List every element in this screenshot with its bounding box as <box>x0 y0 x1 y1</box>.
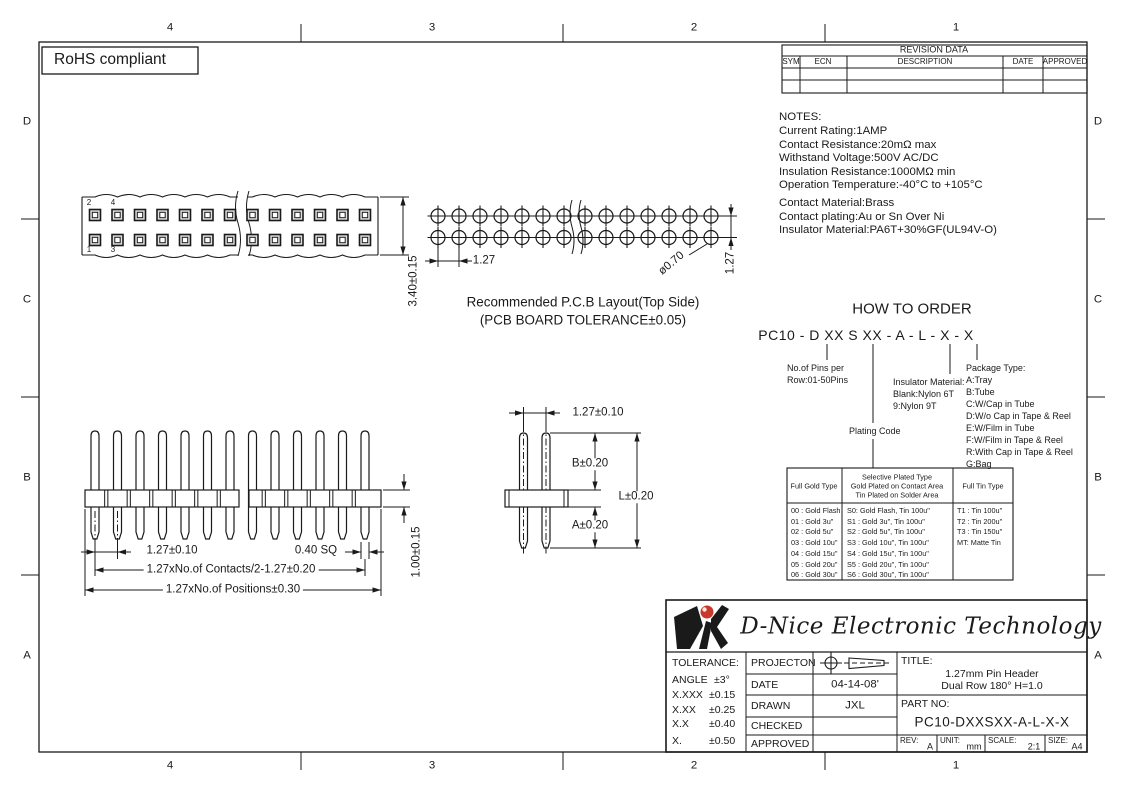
dim-front-pin-sq: 0.40 SQ <box>295 545 337 557</box>
package-option: F:W/Film in Tape & Reel <box>966 436 1063 445</box>
size-value: A4 <box>1071 743 1082 752</box>
pin-number: 2 <box>87 199 91 207</box>
revision-col-header: ECN <box>815 58 832 66</box>
notes-line: Operation Temperature:-40°C to +105°C <box>779 180 983 191</box>
field-value-date: 04-14-08' <box>831 679 879 690</box>
plating-gold-row: 06 : Gold 30u" <box>791 571 837 578</box>
plating-gold-row: 00 : Gold Flash <box>791 507 840 514</box>
drawing-sheet: 4 3 2 1 4 3 2 1 D C B A D C B A RoHS com… <box>0 0 1123 794</box>
tolerance-label: X.X <box>672 719 689 730</box>
field-value-drawn: JXL <box>845 700 865 711</box>
tolerance-value: ±0.15 <box>709 690 735 701</box>
revision-col-header: SYM <box>782 58 799 66</box>
zone-label-left: A <box>23 650 31 661</box>
callout-pins: No.of Pins per <box>787 364 844 373</box>
company-name: D-Nice Electronic Technology <box>740 616 1101 639</box>
field-label-drawn: DRAWN <box>751 701 790 712</box>
part-no-value: PC10-DXXSXX-A-L-X-X <box>914 715 1069 729</box>
package-option: G:Bag <box>966 460 992 469</box>
callout-pins: Row:01-50Pins <box>787 376 848 385</box>
callout-plating: Plating Code <box>849 427 901 436</box>
dim-top-view-height: 3.40±0.15 <box>408 255 420 306</box>
zone-label-left: B <box>23 472 31 483</box>
callout-insulator: Blank:Nylon 6T <box>893 390 954 399</box>
plating-header-tin: Full Tin Type <box>962 482 1003 489</box>
revision-col-header: DATE <box>1013 58 1034 66</box>
zone-label-top: 2 <box>691 22 697 33</box>
notes-line: Contact Resistance:20mΩ max <box>779 140 936 151</box>
revision-col-header: DESCRIPTION <box>898 58 953 66</box>
dim-front-positions: 1.27xNo.of Positions±0.30 <box>163 584 303 596</box>
zone-label-left: C <box>23 294 31 305</box>
package-option: E:W/Film in Tube <box>966 424 1035 433</box>
notes-line: Contact Material:Brass <box>779 198 894 209</box>
revision-table-title: REVISION DATA <box>900 46 968 55</box>
zone-label-top: 1 <box>953 22 959 33</box>
zone-label-right: C <box>1094 294 1102 305</box>
zone-label-bottom: 3 <box>429 760 435 771</box>
scale-value: 2:1 <box>1028 743 1041 752</box>
notes-line: Current Rating:1AMP <box>779 126 887 137</box>
dim-side-a: A±0.20 <box>569 520 611 532</box>
dim-side-b: B±0.20 <box>569 458 611 470</box>
plating-tin-row: T1 : Tin 100u" <box>957 507 1002 514</box>
pin-number: 4 <box>111 199 115 207</box>
plating-header-gold: Full Gold Type <box>791 482 838 489</box>
pin-number: 1 <box>87 246 91 254</box>
tolerance-label: X.XX <box>672 705 696 716</box>
rev-value: A <box>927 743 933 752</box>
plating-selective-row: S3 : Gold 10u", Tin 100u" <box>847 539 929 546</box>
plating-gold-row: 05 : Gold 20u" <box>791 561 837 568</box>
how-to-order-title: HOW TO ORDER <box>852 302 971 317</box>
dim-pcb-row: 1.27 <box>725 252 737 274</box>
field-label-date: DATE <box>751 680 778 691</box>
plating-selective-row: S5 : Gold 20u", Tin 100u" <box>847 561 929 568</box>
part-no-label: PART NO: <box>901 699 949 710</box>
field-label-projection: PROJECTON <box>751 658 816 669</box>
plating-selective-row: S4 : Gold 15u", Tin 100u" <box>847 550 929 557</box>
part-number-format: PC10 - D XX S XX - A - L - X - X <box>758 328 973 342</box>
tolerance-label: X.XXX <box>672 690 703 701</box>
package-option: C:W/Cap in Tube <box>966 400 1035 409</box>
field-label-approved: APPROVED <box>751 739 809 750</box>
size-label: SIZE: <box>1048 737 1068 745</box>
pin-number: 3 <box>111 246 115 254</box>
zone-label-left: D <box>23 116 31 127</box>
notes-line: Insulation Resistance:1000MΩ min <box>779 167 955 178</box>
tolerance-value: ±0.50 <box>709 736 735 747</box>
tolerance-label: X. <box>672 736 682 747</box>
unit-label: UNIT: <box>940 737 960 745</box>
unit-value: mm <box>967 743 982 752</box>
plating-selective-row: S0: Gold Flash, Tin 100u" <box>847 507 930 514</box>
drawing-title-line1: 1.27mm Pin Header <box>945 669 1038 680</box>
pcb-caption: Recommended P.C.B Layout(Top Side) <box>467 295 700 308</box>
package-option: D:W/o Cap in Tape & Reel <box>966 412 1071 421</box>
notes-line: Contact plating:Au or Sn Over Ni <box>779 212 944 223</box>
plating-tin-row: T3 : Tin 150u" <box>957 528 1002 535</box>
zone-label-bottom: 4 <box>167 760 173 771</box>
dim-side-l: L±0.20 <box>615 491 656 503</box>
plating-header-selective: Gold Plated on Contact Area <box>851 482 944 489</box>
plating-gold-row: 03 : Gold 10u" <box>791 539 837 546</box>
rev-label: REV: <box>900 737 918 745</box>
plating-tin-row: MT: Matte Tin <box>957 539 1001 546</box>
zone-label-right: A <box>1094 650 1102 661</box>
package-option: B:Tube <box>966 388 995 397</box>
zone-label-right: D <box>1094 116 1102 127</box>
drawing-title-line2: Dual Row 180° H=1.0 <box>941 681 1042 692</box>
zone-label-bottom: 2 <box>691 760 697 771</box>
plating-header-selective: Selective Plated Type <box>862 473 932 480</box>
dim-front-height: 1.00±0.15 <box>411 526 423 577</box>
tolerance-value: ±0.40 <box>709 719 735 730</box>
callout-insulator: Insulator Material: <box>893 378 965 387</box>
tolerance-label: ANGLE <box>672 675 708 686</box>
plating-selective-row: S1 : Gold 3u", Tin 100u" <box>847 518 925 525</box>
revision-col-header: APPROVED <box>1043 58 1087 66</box>
plating-selective-row: S2 : Gold 5u", Tin 100u" <box>847 528 925 535</box>
notes-line: Withstand Voltage:500V AC/DC <box>779 153 939 164</box>
package-option: R:With Cap in Tape & Reel <box>966 448 1073 457</box>
dim-side-pitch: 1.27±0.10 <box>572 407 623 419</box>
dim-pcb-pitch: 1.27 <box>473 255 495 267</box>
dim-front-pitch: 1.27±0.10 <box>146 545 197 557</box>
tolerance-heading: TOLERANCE: <box>672 658 739 669</box>
notes-line: Insulator Material:PA6T+30%GF(UL94V-O) <box>779 225 997 236</box>
dim-front-contacts: 1.27xNo.of Contacts/2-1.27±0.20 <box>144 564 319 576</box>
field-label-checked: CHECKED <box>751 721 802 732</box>
notes-heading: NOTES: <box>779 112 821 123</box>
plating-gold-row: 01 : Gold 3u" <box>791 518 833 525</box>
pcb-caption: (PCB BOARD TOLERANCE±0.05) <box>480 313 686 326</box>
plating-gold-row: 04 : Gold 15u" <box>791 550 837 557</box>
rohs-label: RoHS compliant <box>54 52 166 68</box>
tolerance-value: ±0.25 <box>709 705 735 716</box>
callout-package-heading: Package Type: <box>966 364 1025 373</box>
zone-label-top: 3 <box>429 22 435 33</box>
zone-label-bottom: 1 <box>953 760 959 771</box>
tolerance-value: ±3° <box>714 675 730 686</box>
zone-label-top: 4 <box>167 22 173 33</box>
scale-label: SCALE: <box>988 737 1016 745</box>
zone-label-right: B <box>1094 472 1102 483</box>
plating-tin-row: T2 : Tin 200u" <box>957 518 1002 525</box>
plating-header-selective: Tin Plated on Solder Area <box>856 491 939 498</box>
plating-gold-row: 02 : Gold 5u" <box>791 528 833 535</box>
package-option: A:Tray <box>966 376 992 385</box>
callout-insulator: 9:Nylon 9T <box>893 402 937 411</box>
title-label: TITLE: <box>901 656 933 667</box>
plating-selective-row: S6 : Gold 30u", Tin 100u" <box>847 571 929 578</box>
